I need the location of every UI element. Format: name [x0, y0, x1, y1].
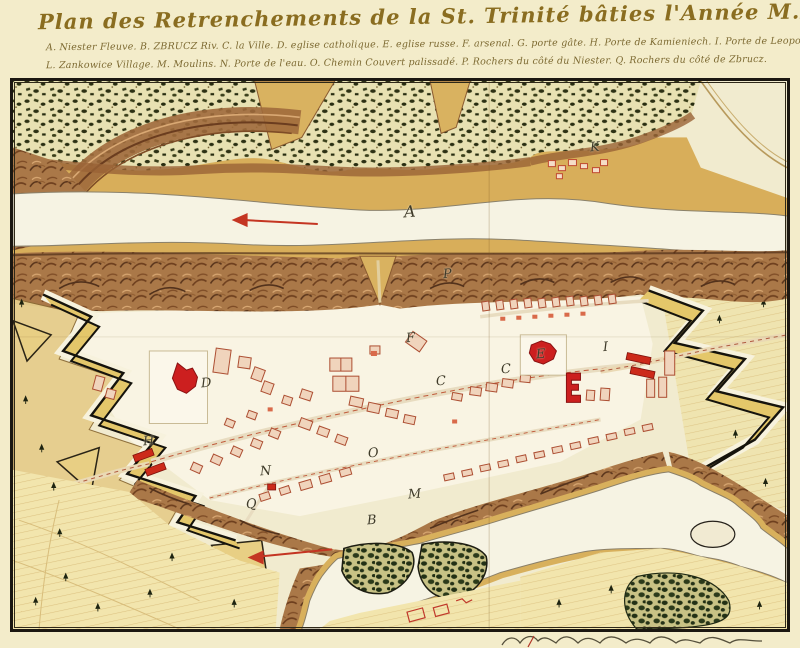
map-letter-C2: C — [501, 363, 512, 377]
water-gate — [268, 484, 276, 490]
map-letter-K: K — [590, 141, 601, 155]
map-drawing — [13, 81, 787, 629]
map-letter-M: M — [408, 488, 422, 502]
map-letter-H: H — [143, 435, 155, 449]
map-title: Plan des Retrenchements de la St. Trinit… — [38, 0, 784, 34]
map-letter-I: I — [603, 341, 609, 354]
map-letter-D: D — [201, 377, 212, 391]
map-letter-C: C — [436, 375, 447, 389]
map-letter-Q: Q — [246, 498, 258, 512]
legend-line-1: A. Niester Fleuve. B. ZBRUCZ Riv. C. la … — [46, 36, 786, 53]
map-letter-N: N — [260, 465, 272, 479]
map-letter-A: A — [403, 204, 416, 221]
map-letter-O: O — [368, 447, 380, 461]
signature-fragment — [498, 631, 770, 648]
catholic-church — [149, 351, 207, 424]
map-letter-F: F — [406, 332, 416, 346]
map-letter-E: E — [536, 348, 546, 362]
arsenal-building — [566, 373, 580, 402]
historical-map-page: Plan des Retrenchements de la St. Trinit… — [0, 0, 800, 648]
map-letter-B: B — [367, 514, 377, 528]
legend-line-2: L. Zankowice Village. M. Moulins. N. Por… — [46, 54, 786, 71]
map-letter-P: P — [443, 268, 453, 282]
map-frame — [10, 78, 790, 632]
